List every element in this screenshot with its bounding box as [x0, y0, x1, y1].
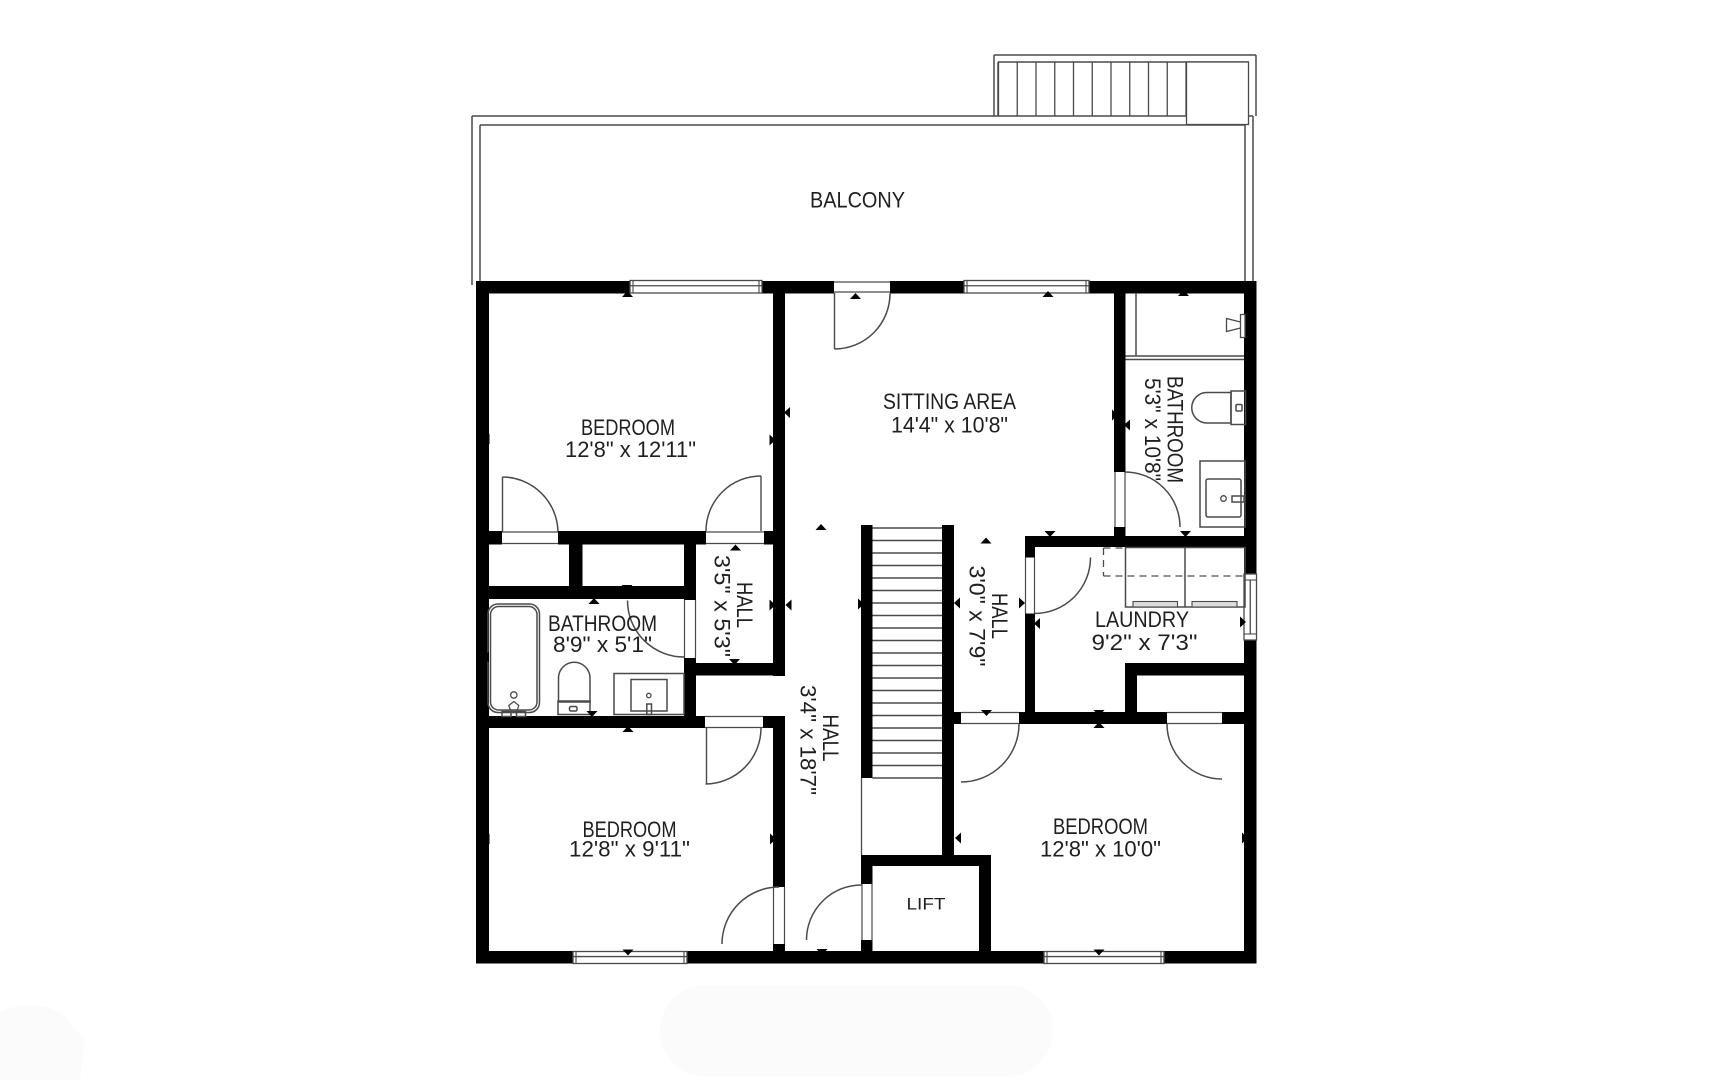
svg-text:LIFT: LIFT [907, 895, 946, 913]
svg-text:HALL: HALL [732, 582, 757, 628]
svg-text:HALL: HALL [818, 715, 843, 762]
svg-text:HALL: HALL [987, 593, 1012, 639]
svg-text:8'9" x 5'1": 8'9" x 5'1" [553, 632, 652, 657]
svg-text:SITTING AREA: SITTING AREA [883, 389, 1016, 414]
svg-text:BEDROOM: BEDROOM [1053, 814, 1148, 839]
svg-text:3'5" x 5'3": 3'5" x 5'3" [710, 555, 735, 657]
svg-text:BALCONY: BALCONY [810, 188, 905, 213]
svg-text:9'2" x 7'3": 9'2" x 7'3" [1092, 630, 1198, 655]
svg-text:BATHROOM: BATHROOM [1163, 376, 1188, 483]
svg-text:LAUNDRY: LAUNDRY [1095, 607, 1189, 632]
svg-text:3'0" x 7'9": 3'0" x 7'9" [965, 566, 990, 667]
svg-text:12'8" x 12'11": 12'8" x 12'11" [565, 437, 696, 462]
svg-text:12'8" x 9'11": 12'8" x 9'11" [569, 837, 690, 862]
svg-text:3'4" x 18'7": 3'4" x 18'7" [796, 685, 821, 795]
svg-text:5'3" x 10'8": 5'3" x 10'8" [1140, 378, 1165, 481]
svg-text:12'8" x 10'0": 12'8" x 10'0" [1040, 837, 1161, 862]
svg-text:14'4" x 10'8": 14'4" x 10'8" [891, 413, 1008, 438]
